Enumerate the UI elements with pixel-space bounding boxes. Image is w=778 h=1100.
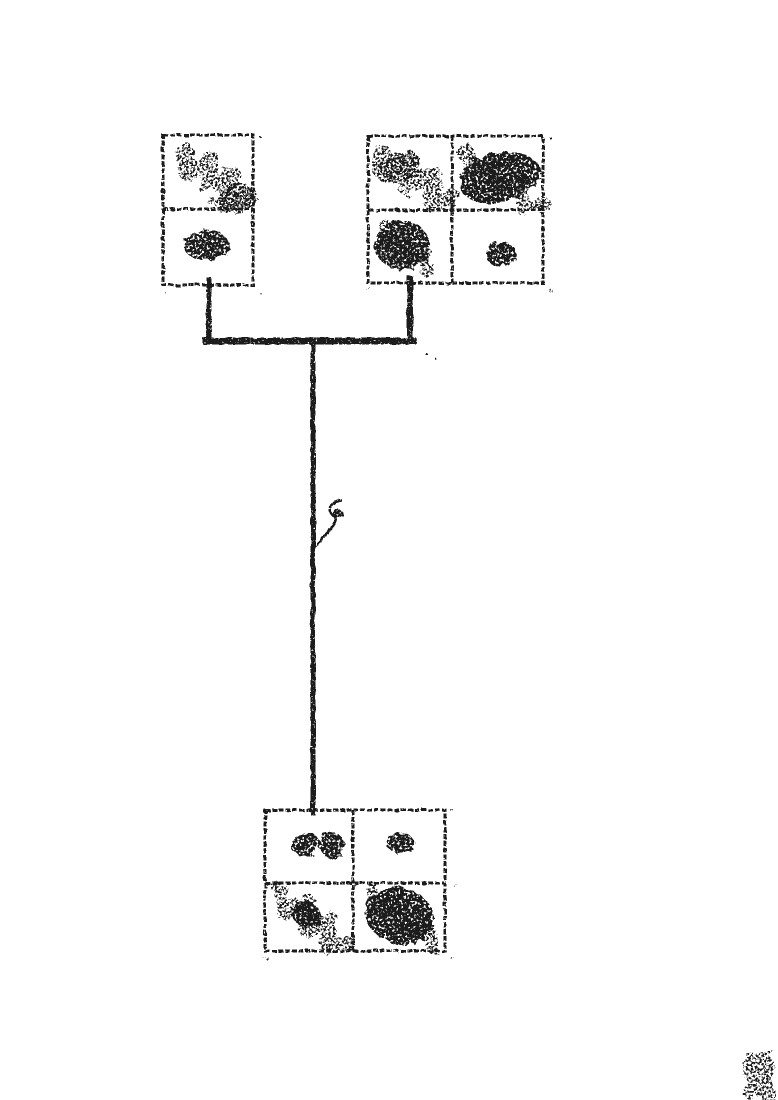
scribble-child — [288, 830, 318, 854]
scan-speck-1 — [255, 132, 258, 135]
scribble-left-parent — [181, 228, 227, 258]
corner-smudge — [743, 1049, 771, 1096]
pen-squiggle-knot — [331, 507, 341, 517]
scan-speck-14 — [454, 884, 457, 887]
scan-speck-11 — [447, 806, 450, 809]
figure-root — [159, 132, 772, 1097]
scan-speck-4 — [365, 133, 368, 136]
scan-speck-2 — [159, 287, 162, 290]
scan-speck-8 — [423, 350, 426, 353]
scan-speck-0 — [159, 132, 162, 135]
scan-speck-5 — [545, 133, 548, 136]
scan-speck-13 — [447, 953, 450, 956]
connector-tree — [206, 279, 413, 813]
scribble-child — [384, 831, 412, 851]
scribble-child — [318, 830, 342, 856]
scan-speck-10 — [261, 806, 264, 809]
scan-speck-6 — [365, 285, 368, 288]
scanned-figure-page — [0, 0, 778, 1100]
scan-speck-12 — [261, 953, 264, 956]
scan-speck-9 — [432, 355, 435, 358]
figure-canvas — [0, 0, 778, 1100]
scan-speck-7 — [545, 285, 548, 288]
scan-speck-3 — [255, 287, 258, 290]
scribble-right-parent — [483, 240, 515, 264]
